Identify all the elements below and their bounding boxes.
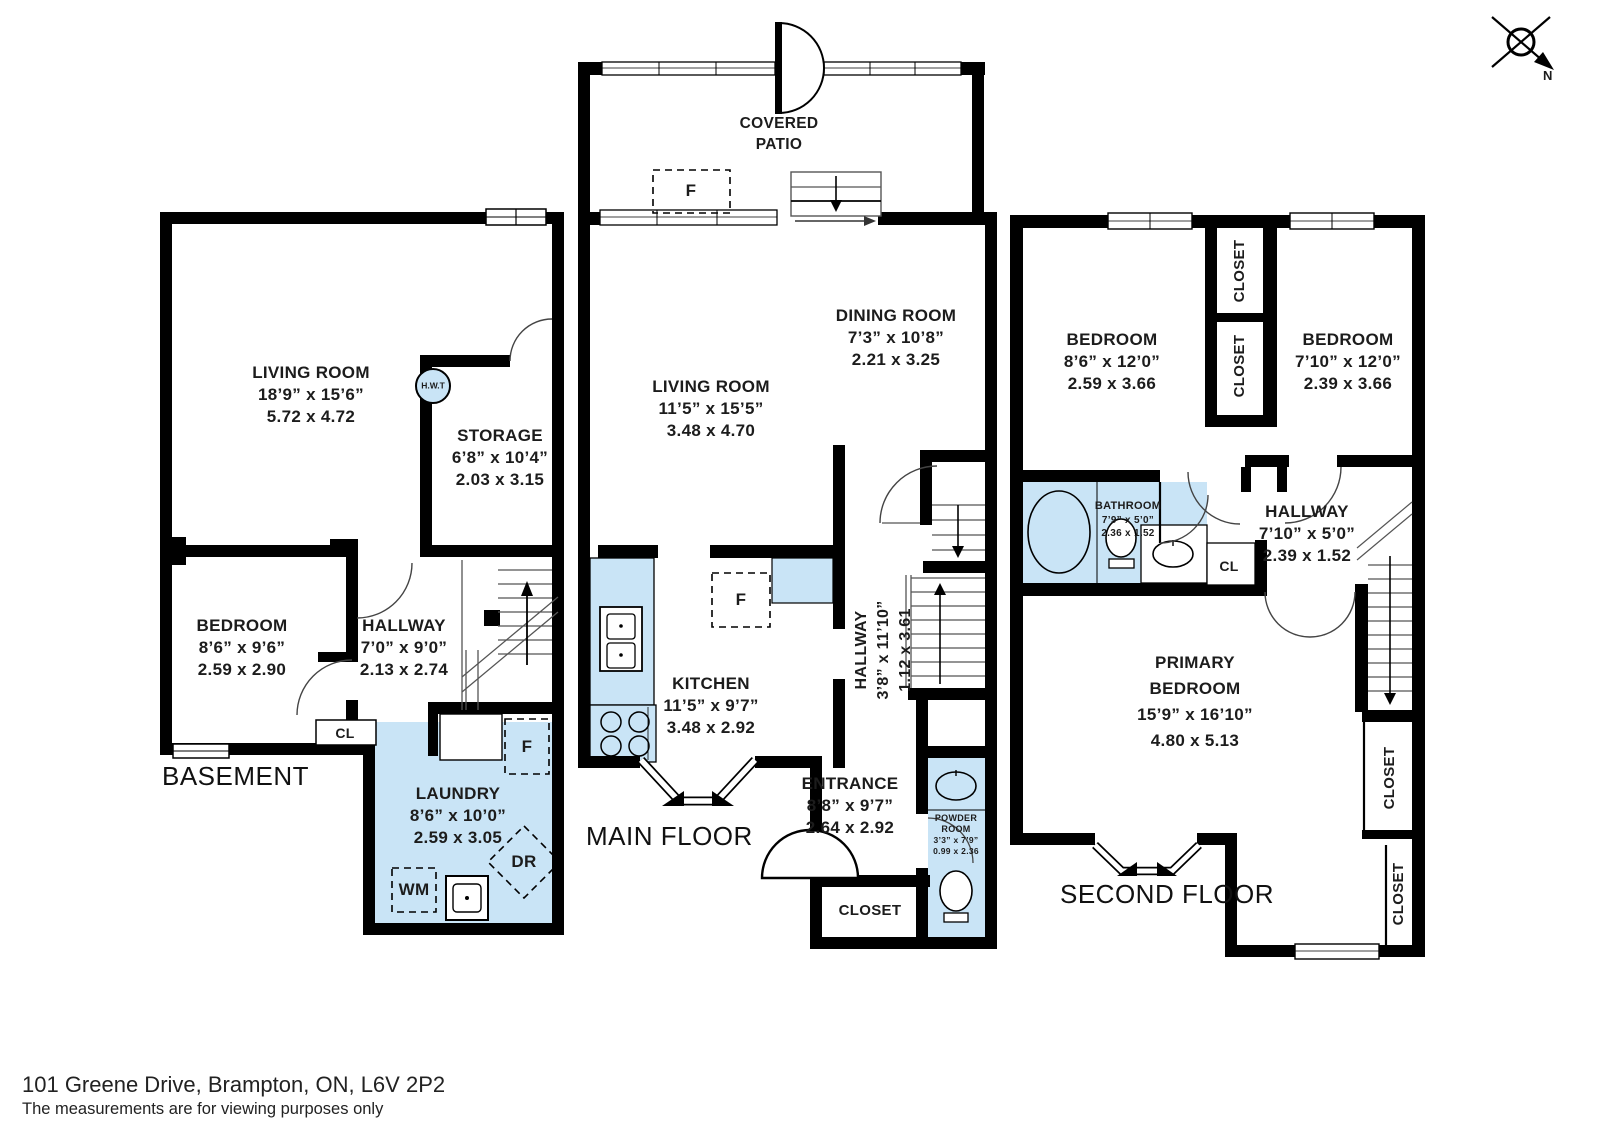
basement-storage-label: STORAGE 6’8” x 10’4” 2.03 x 3.15 xyxy=(452,425,548,491)
room-name: LIVING ROOM xyxy=(252,362,370,384)
room-name: DINING ROOM xyxy=(836,305,956,327)
main-hallway-label: HALLWAY 3’8” x 11’10” 1.12 x 3.61 xyxy=(851,600,917,699)
room-imperial: 8’6” x 10’0” xyxy=(410,805,506,827)
room-name: HALLWAY xyxy=(1259,501,1355,523)
closet-right-top-label: CLOSET xyxy=(1379,747,1401,810)
entrance-label: ENTRANCE 8’8” x 9’7” 2.64 x 2.92 xyxy=(802,773,899,839)
basement-title: BASEMENT xyxy=(162,761,309,792)
primary-bedroom-label: PRIMARY BEDROOM 15’9” x 16’10” 4.80 x 5.… xyxy=(1137,650,1253,754)
kitchen-label: KITCHEN 11’5” x 9’7” 3.48 x 2.92 xyxy=(663,673,758,739)
room-imperial: 3’8” x 11’10” xyxy=(873,600,895,699)
second-cl-label: CL xyxy=(1219,558,1238,574)
room-name: BATHROOM xyxy=(1095,500,1161,514)
room-imperial: 7’10” x 12’0” xyxy=(1295,351,1401,373)
room-metric: 2.64 x 2.92 xyxy=(802,817,899,839)
laundry-counter xyxy=(440,714,502,760)
covered-patio-label: COVERED PATIO xyxy=(740,113,819,155)
closet-right-bottom-label: CLOSET xyxy=(1388,863,1410,926)
room-name: BEDROOM xyxy=(1295,329,1401,351)
room-imperial: 8’6” x 12’0” xyxy=(1064,351,1160,373)
bay-window-second xyxy=(1095,845,1199,876)
main-living-room-label: LIVING ROOM 11’5” x 15’5” 3.48 x 4.70 xyxy=(652,376,770,442)
room-imperial: 18’9” x 15’6” xyxy=(252,384,370,406)
dryer-label: DR xyxy=(511,851,536,873)
freezer-label: F xyxy=(522,736,533,758)
closet-bottom-label: CLOSET xyxy=(1229,335,1251,398)
room-metric: 2.59 x 3.05 xyxy=(410,827,506,849)
room-metric: 5.72 x 4.72 xyxy=(252,406,370,428)
basement-closet-label: CL xyxy=(335,725,354,741)
room-name: HALLWAY xyxy=(851,600,873,699)
room-metric: 2.59 x 2.90 xyxy=(197,659,288,681)
room-metric: 2.39 x 3.66 xyxy=(1295,373,1401,395)
address-text: 101 Greene Drive, Brampton, ON, L6V 2P2 xyxy=(22,1072,445,1098)
closet-top-label: CLOSET xyxy=(1229,240,1251,303)
washer-label: WM xyxy=(399,879,430,901)
room-name: HALLWAY xyxy=(360,615,448,637)
disclaimer-text: The measurements are for viewing purpose… xyxy=(22,1100,383,1119)
room-metric: 2.36 x 1.52 xyxy=(1095,527,1161,541)
room-metric: 2.59 x 3.66 xyxy=(1064,373,1160,395)
primary-door-arc-right xyxy=(1310,592,1355,637)
room-name: BEDROOM xyxy=(1064,329,1160,351)
room-name: LIVING ROOM xyxy=(652,376,770,398)
room-metric: 3.48 x 2.92 xyxy=(663,717,758,739)
hallway-door-arc xyxy=(357,563,412,618)
kitchen-counter-2 xyxy=(772,558,833,603)
bedroom-door-arc xyxy=(297,660,352,715)
floorplan-drawing xyxy=(0,0,1600,1132)
room-name: KITCHEN xyxy=(663,673,758,695)
bedroom-left-label: BEDROOM 8’6” x 12’0” 2.59 x 3.66 xyxy=(1064,329,1160,395)
room-metric: 2.39 x 1.52 xyxy=(1259,545,1355,567)
room-name: ENTRANCE xyxy=(802,773,899,795)
powder-room-label: POWDER ROOM 3’3” x 7’9” 0.99 x 2.36 xyxy=(933,813,979,857)
second-floorplan xyxy=(1010,213,1425,959)
room-imperial: 7’0” x 9’0” xyxy=(360,637,448,659)
room-imperial: 7’3” x 10’8” xyxy=(836,327,956,349)
patio-door xyxy=(775,22,824,114)
basement-living-room-label: LIVING ROOM 18’9” x 15’6” 5.72 x 4.72 xyxy=(252,362,370,428)
room-metric: 2.21 x 3.25 xyxy=(836,349,956,371)
floorplan-page: LIVING ROOM 18’9” x 15’6” 5.72 x 4.72 ST… xyxy=(0,0,1600,1132)
basement-laundry-label: LAUNDRY 8’6” x 10’0” 2.59 x 3.05 xyxy=(410,783,506,849)
room-metric: 2.13 x 2.74 xyxy=(360,659,448,681)
room-name: BEDROOM xyxy=(197,615,288,637)
stairs-up-arrowhead xyxy=(521,581,533,596)
room-imperial: 7’9” x 5’0” xyxy=(1095,513,1161,527)
basement-bedroom-label: BEDROOM 8’6” x 9’6” 2.59 x 2.90 xyxy=(197,615,288,681)
primary-door-arc-left xyxy=(1265,592,1310,637)
room-metric: 3.48 x 4.70 xyxy=(652,420,770,442)
main-closet-label: CLOSET xyxy=(839,900,902,922)
room-metric: 4.80 x 5.13 xyxy=(1137,728,1253,754)
room-imperial: 7’10” x 5’0” xyxy=(1259,523,1355,545)
second-hallway-label: HALLWAY 7’10” x 5’0” 2.39 x 1.52 xyxy=(1259,501,1355,567)
patio-steps xyxy=(791,172,881,226)
main-floorplan xyxy=(578,22,997,949)
bedroom-right-label: BEDROOM 7’10” x 12’0” 2.39 x 3.66 xyxy=(1295,329,1401,395)
second-floor-title: SECOND FLOOR xyxy=(1060,879,1274,910)
room-name: STORAGE xyxy=(452,425,548,447)
dining-room-label: DINING ROOM 7’3” x 10’8” 2.21 x 3.25 xyxy=(836,305,956,371)
basement-stairs xyxy=(462,560,558,710)
room-imperial: 11’5” x 15’5” xyxy=(652,398,770,420)
patio-freezer-label: F xyxy=(686,180,697,202)
compass-icon xyxy=(1492,17,1554,70)
room-imperial: 6’8” x 10’4” xyxy=(452,447,548,469)
hot-water-tank-label: H.W.T xyxy=(421,382,445,391)
room-metric: 2.03 x 3.15 xyxy=(452,469,548,491)
room-name: LAUNDRY xyxy=(410,783,506,805)
powder-toilet-icon xyxy=(940,871,972,911)
room-metric: 1.12 x 3.61 xyxy=(895,600,917,699)
room-imperial: 8’6” x 9’6” xyxy=(197,637,288,659)
main-floor-title: MAIN FLOOR xyxy=(586,821,753,852)
room-imperial: 11’5” x 9’7” xyxy=(663,695,758,717)
fridge-label: F xyxy=(736,589,747,611)
bay-window-main xyxy=(641,760,755,806)
basement-hallway-label: HALLWAY 7’0” x 9’0” 2.13 x 2.74 xyxy=(360,615,448,681)
compass-north-label: N xyxy=(1543,68,1552,83)
storage-door-arc xyxy=(510,319,552,361)
room-imperial: 15’9” x 16’10” xyxy=(1137,702,1253,728)
room-imperial: 8’8” x 9’7” xyxy=(802,795,899,817)
bathroom-label: BATHROOM 7’9” x 5’0” 2.36 x 1.52 xyxy=(1095,500,1161,541)
